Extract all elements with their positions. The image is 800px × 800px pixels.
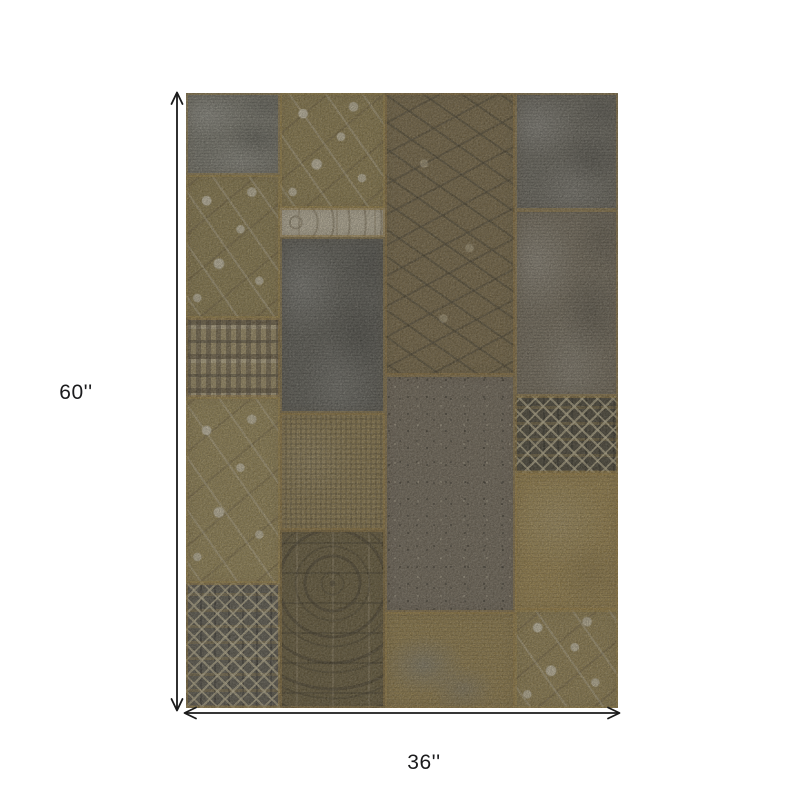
- rug-patch-left-bottom-medallion: [186, 583, 280, 708]
- height-dimension-label: 60'': [52, 382, 100, 403]
- rug-patch-cream-border-band: [280, 208, 385, 237]
- width-dimension-label: 36'': [400, 752, 448, 773]
- rug-patch-gold-gray-bottom: [385, 612, 515, 708]
- rug-patch-right-top-gray: [515, 93, 618, 210]
- rug-patch-mid-left-floral: [280, 93, 385, 208]
- height-dimension-arrow: [172, 93, 183, 711]
- rug-patch-right-bottom-floral: [515, 610, 618, 708]
- rug-patch-tan-woven: [280, 413, 385, 530]
- rug-patch-right-gold: [515, 473, 618, 610]
- rug-patch-mid-ornate: [280, 530, 385, 708]
- rug-patch-right-dark-geometric: [515, 396, 618, 473]
- rug-patch-right-brown-mottled: [515, 210, 618, 396]
- rug-patch-slate-patch: [280, 237, 385, 413]
- rug-patch-olive-vine: [385, 93, 515, 375]
- rug-patch-top-left-gray: [186, 93, 280, 175]
- rug-patch-speckled-center: [385, 375, 515, 612]
- product-dimension-diagram: 60'' 36'': [0, 0, 800, 800]
- rug-image: [186, 93, 618, 708]
- rug-patch-left-kilim-band: [186, 318, 280, 397]
- width-dimension-arrow: [185, 708, 620, 719]
- rug-patch-left-floral: [186, 175, 280, 318]
- rug-patch-left-vine-floral: [186, 397, 280, 583]
